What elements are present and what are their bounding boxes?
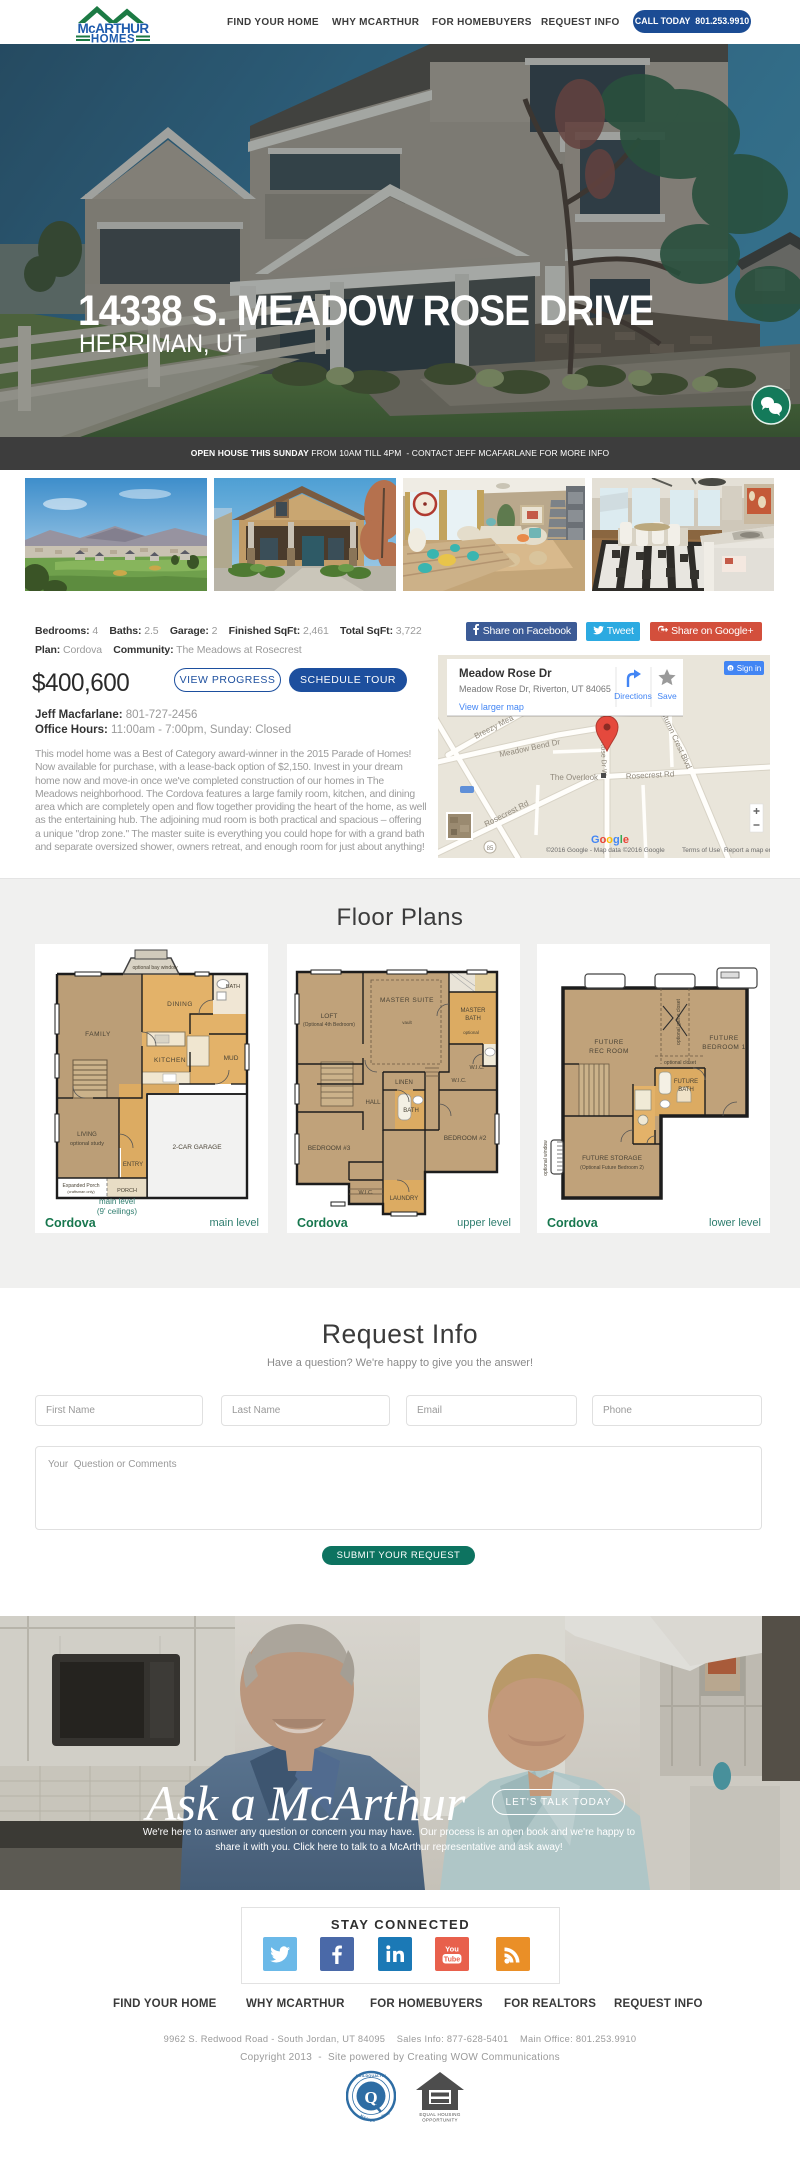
svg-text:2-CAR GARAGE: 2-CAR GARAGE	[172, 1144, 222, 1151]
svg-text:DINING: DINING	[167, 1001, 193, 1008]
svg-text:Tube: Tube	[444, 1955, 460, 1963]
svg-text:Meadow Rose Dr: Meadow Rose Dr	[459, 668, 552, 680]
svg-text:GUILDQUALITY: GUILDQUALITY	[356, 2074, 387, 2078]
svg-text:Terms of Use: Terms of Use	[682, 847, 721, 854]
svg-text:PORCH: PORCH	[117, 1188, 137, 1194]
svg-text:LAUNDRY: LAUNDRY	[390, 1196, 419, 1202]
svg-text:(Optional Future Bedroom 2): (Optional Future Bedroom 2)	[580, 1165, 644, 1171]
svg-text:optional game closet: optional game closet	[676, 998, 682, 1044]
svg-text:View larger map: View larger map	[459, 702, 524, 712]
svg-text:You: You	[445, 1945, 459, 1954]
svg-text:BEDROOM #3: BEDROOM #3	[308, 1145, 351, 1152]
svg-text:MASTER SUITE: MASTER SUITE	[380, 997, 434, 1004]
svg-text:FUTURE: FUTURE	[594, 1039, 624, 1046]
svg-text:HOMES: HOMES	[91, 34, 135, 45]
svg-text:Cordova: Cordova	[297, 1216, 349, 1230]
svg-text:BATH: BATH	[678, 1087, 694, 1093]
svg-text:lower level: lower level	[709, 1217, 761, 1229]
svg-text:Sign in: Sign in	[737, 664, 761, 673]
svg-text:FUTURE STORAGE: FUTURE STORAGE	[582, 1155, 642, 1162]
svg-text:BATH: BATH	[403, 1108, 419, 1114]
svg-text:BEDROOM 1: BEDROOM 1	[702, 1044, 746, 1051]
svg-text:vault: vault	[402, 1020, 412, 1025]
svg-text:Save: Save	[657, 691, 677, 701]
svg-text:optional: optional	[463, 1030, 479, 1035]
svg-text:(9' ceilings): (9' ceilings)	[97, 1207, 138, 1216]
svg-text:MUD: MUD	[224, 1055, 239, 1062]
svg-text:upper level: upper level	[457, 1217, 511, 1229]
svg-text:BATH: BATH	[465, 1016, 481, 1022]
svg-text:optional bay window: optional bay window	[132, 965, 177, 971]
svg-text:85: 85	[487, 846, 494, 852]
svg-text:optional study: optional study	[70, 1141, 104, 1147]
svg-text:EQUAL HOUSING: EQUAL HOUSING	[419, 2112, 460, 2117]
svg-text:W.I.C.: W.I.C.	[470, 1065, 485, 1071]
svg-text:Google: Google	[591, 834, 629, 846]
svg-text:main level: main level	[209, 1217, 259, 1229]
svg-text:optional window: optional window	[543, 1140, 549, 1176]
svg-text:MASTER: MASTER	[460, 1008, 486, 1014]
svg-text:BATH: BATH	[226, 984, 240, 990]
svg-text:Cordova: Cordova	[547, 1216, 599, 1230]
svg-text:W.I.C.: W.I.C.	[452, 1078, 467, 1084]
svg-text:Meadow Rose Dr, Riverton, UT 8: Meadow Rose Dr, Riverton, UT 84065	[459, 684, 611, 694]
svg-text:LOFT: LOFT	[321, 1013, 338, 1020]
svg-text:The Overlook: The Overlook	[550, 773, 599, 782]
svg-text:HALL: HALL	[365, 1100, 381, 1106]
svg-text:ENTRY: ENTRY	[123, 1162, 143, 1168]
svg-text:W.I.C.: W.I.C.	[359, 1190, 374, 1196]
svg-text:main level: main level	[99, 1197, 135, 1206]
svg-text:FAMILY: FAMILY	[85, 1031, 111, 1038]
svg-text:Q: Q	[364, 2088, 377, 2107]
svg-text:Expanded Porch: Expanded Porch	[63, 1183, 100, 1189]
svg-text:LINEN: LINEN	[395, 1080, 413, 1086]
svg-text:©2016 Google - Map data ©2016: ©2016 Google - Map data ©2016 Google	[546, 846, 665, 854]
svg-text:Directions: Directions	[614, 691, 652, 701]
svg-text:REC ROOM: REC ROOM	[589, 1048, 629, 1055]
svg-text:FUTURE: FUTURE	[709, 1035, 739, 1042]
svg-text:g: g	[729, 666, 732, 672]
svg-text:Report a map error: Report a map error	[724, 847, 770, 854]
svg-text:(craftsman only): (craftsman only)	[67, 1190, 95, 1194]
svg-text:OPPORTUNITY: OPPORTUNITY	[422, 2118, 458, 2123]
svg-text:optional closet: optional closet	[664, 1060, 697, 1066]
svg-text:(Optional 4th Bedroom): (Optional 4th Bedroom)	[303, 1022, 355, 1028]
svg-text:KITCHEN: KITCHEN	[154, 1057, 186, 1064]
svg-text:LIVING: LIVING	[77, 1132, 97, 1138]
svg-text:BEDROOM #2: BEDROOM #2	[444, 1135, 487, 1142]
svg-text:FUTURE: FUTURE	[674, 1079, 698, 1085]
svg-text:Cordova: Cordova	[45, 1216, 97, 1230]
